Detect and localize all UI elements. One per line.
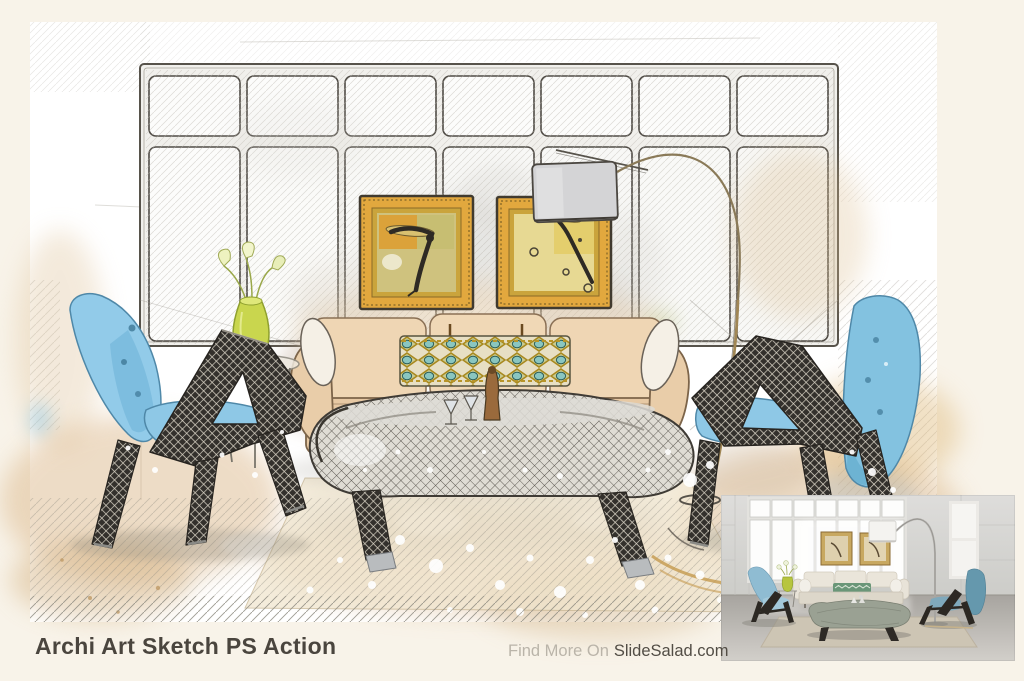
footer-note: Find More OnSlideSalad.com [508,642,728,661]
product-title: Archi Art Sketch PS Action [35,633,336,660]
original-photo-inset [721,495,1015,661]
artwork-frame-left [360,196,473,309]
photo-room [721,495,1015,661]
lamp-shade [532,162,618,223]
brand-name: SlideSalad.com [614,642,729,660]
promo-image: Archi Art Sketch PS Action Find More OnS… [0,0,1024,681]
find-more-text: Find More On [508,642,609,660]
